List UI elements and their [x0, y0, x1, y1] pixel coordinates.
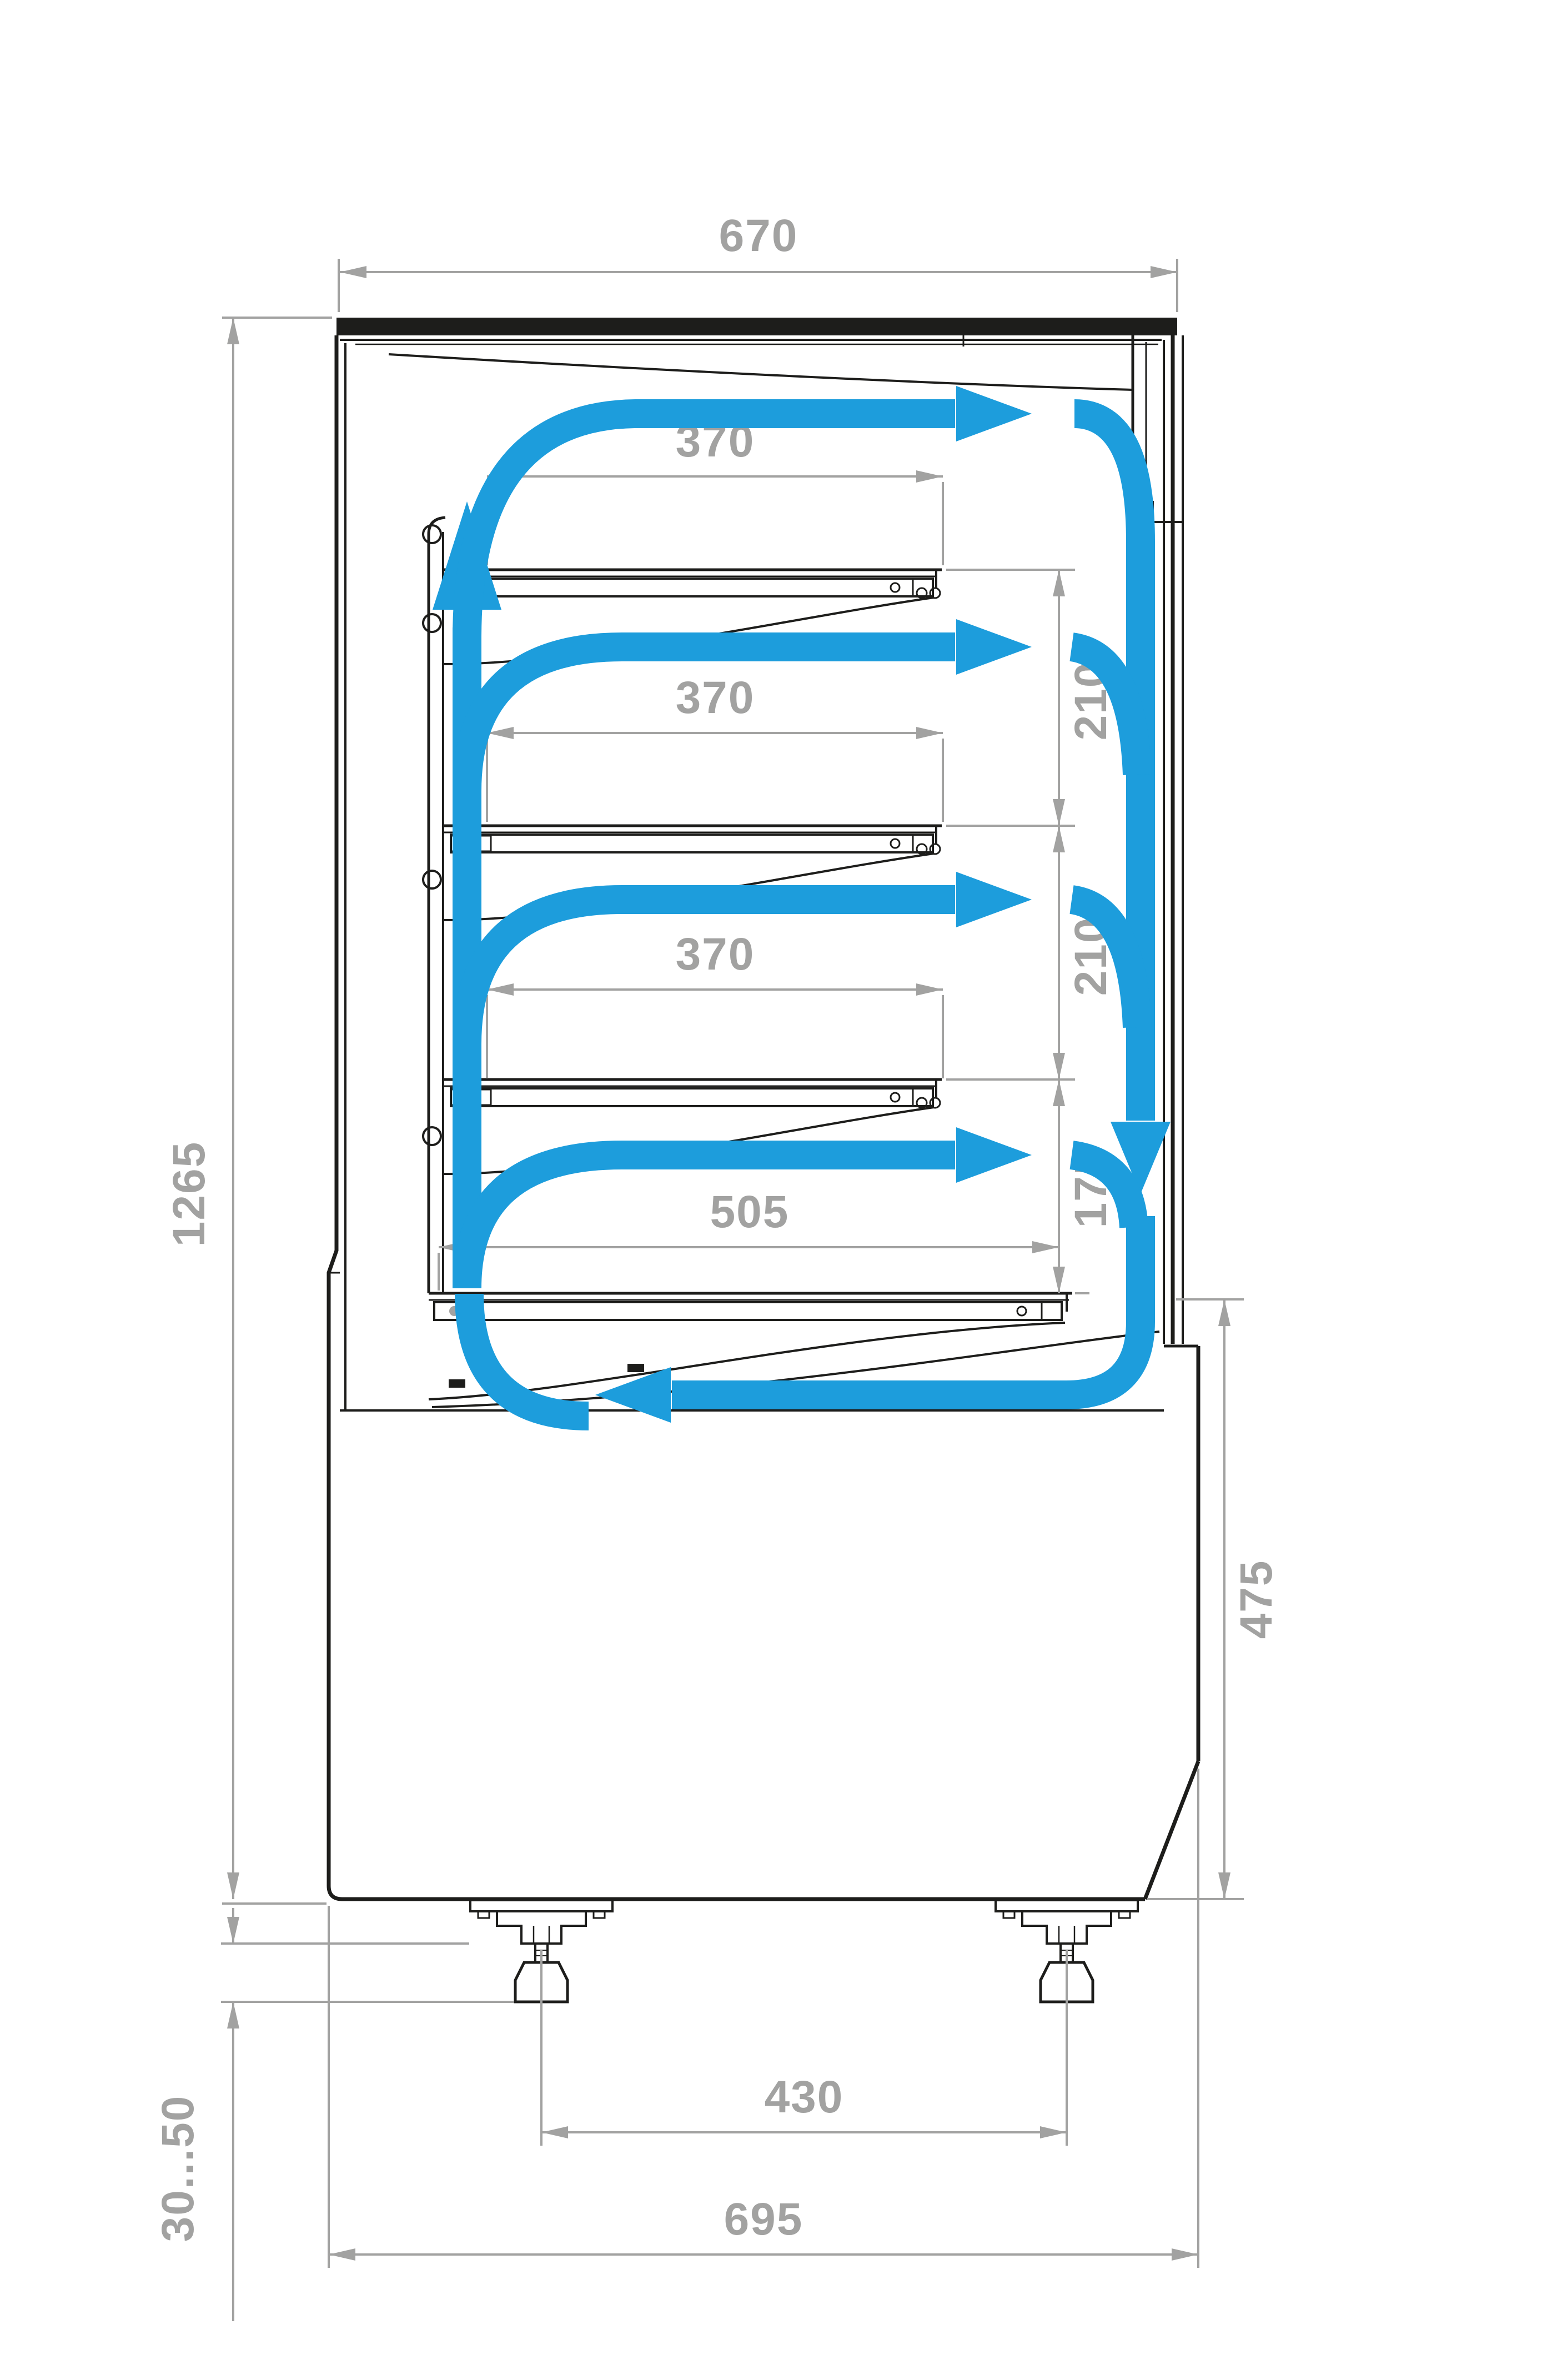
tray-support-2 [627, 1364, 644, 1372]
dim-label-370-3: 370 [676, 929, 755, 980]
dim-foot-adjust: 30...50 [153, 1908, 514, 2321]
dim-label-695: 695 [724, 2194, 803, 2245]
dim-base-width: 695 [329, 1769, 1198, 2268]
dim-label-505: 505 [710, 1187, 790, 1237]
dim-deck-length: 505 [439, 1187, 1059, 1291]
dim-label-475: 475 [1231, 1560, 1282, 1639]
dim-base-height: 475 [1147, 1299, 1282, 1899]
base-front-chamfer [1145, 1761, 1198, 1899]
display-case-section-drawing: 670 1265 370 370 [0, 0, 1542, 2380]
airflow-branch-2-arrow-icon [956, 872, 1032, 927]
dim-shelf3-length: 370 [487, 929, 943, 1078]
dimensions: 670 1265 370 370 [153, 210, 1282, 2321]
dim-overall-height: 1265 [164, 318, 332, 1904]
back-wall-outer [329, 335, 342, 1899]
dim-label-30-50: 30...50 [153, 2095, 203, 2242]
duct-hole-3-icon [423, 1127, 441, 1145]
dim-feet-spacing: 430 [541, 1950, 1067, 2146]
dim-label-430: 430 [765, 2072, 844, 2122]
base-cabinet [340, 1346, 1198, 1899]
airflow-top-arrow-icon [956, 386, 1032, 441]
canopy [336, 318, 1177, 390]
airflow-return-band [672, 1216, 1141, 1395]
airflow-bottom-left-elbow [469, 1294, 589, 1416]
duct-hole-2-icon [423, 871, 441, 888]
dim-shelf2-length: 370 [487, 672, 943, 822]
canopy-duct-ceiling [389, 354, 1133, 390]
dim-label-1265: 1265 [164, 1141, 214, 1247]
airflow-branch-1-arrow-icon [956, 619, 1032, 675]
glass-front [1164, 318, 1183, 1344]
dim-label-670: 670 [719, 210, 798, 261]
back-duct-panel [423, 518, 445, 1293]
dim-top-width: 670 [339, 210, 1177, 312]
airflow-branch-3-arrow-icon [956, 1127, 1032, 1183]
dim-label-370-2: 370 [676, 672, 755, 723]
tray-support-1 [449, 1379, 465, 1388]
duct-hole-1-icon [423, 614, 441, 632]
canopy-top-bar [336, 318, 1177, 335]
back-wall [329, 335, 345, 1899]
drawing-page: 670 1265 370 370 [0, 0, 1542, 2380]
duct-hole-top-icon [423, 525, 441, 543]
dim-shelf-gaps: 210 210 175 [946, 570, 1116, 1293]
